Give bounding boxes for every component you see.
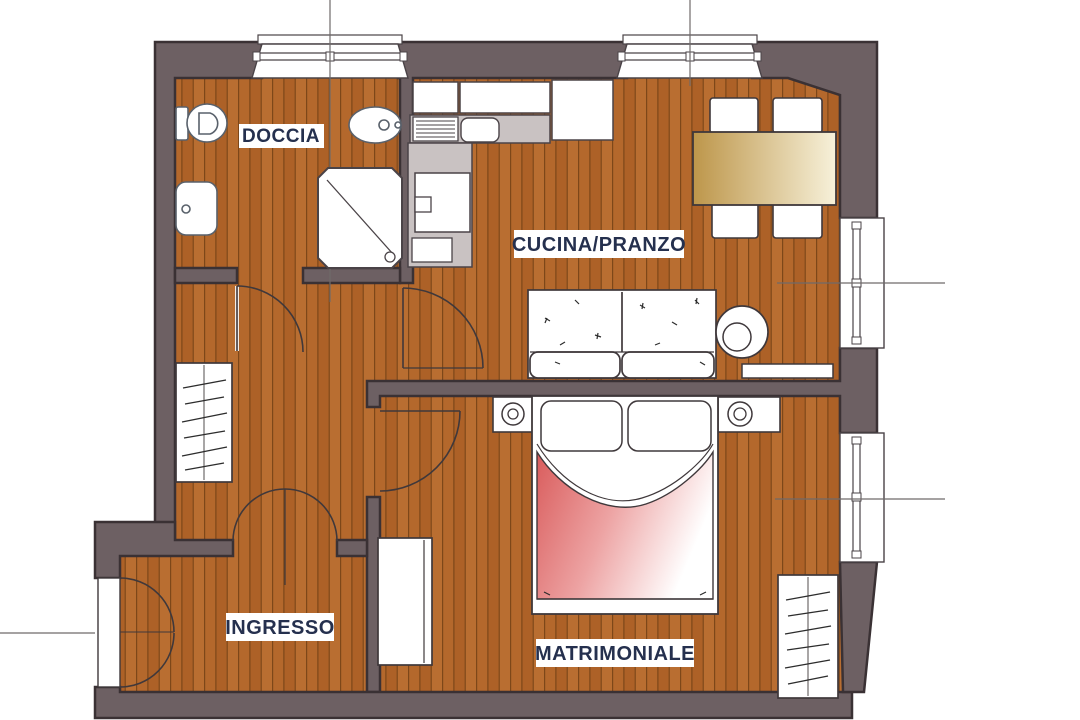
chair [773,98,822,133]
chair [773,203,822,238]
double-bed [532,396,718,614]
sink-basin [461,118,499,142]
oven-handle [415,197,431,212]
cabinet-1 [413,82,458,113]
low-shelf [742,364,833,378]
label-ingresso: INGRESSO [225,613,335,641]
appliance-front [412,238,452,262]
toilet [176,104,227,142]
dining-table [693,132,836,205]
sink-drainer [413,117,458,141]
room-label-text: INGRESSO [225,617,335,639]
floor-plan-canvas: DOCCIA CUCINA/PRANZO INGRESSO MATRIMONIA… [0,0,1080,720]
pillow-right [628,401,711,451]
shower-tray [318,168,402,268]
room-label-text: DOCCIA [242,126,320,147]
wall-hall-ingresso-right [337,540,367,556]
label-cucina-pranzo: CUCINA/PRANZO [512,230,686,258]
wall-right-bottom [840,562,877,692]
label-matrimoniale: MATRIMONIALE [535,639,695,667]
chair [712,203,758,238]
room-label-text: CUCINA/PRANZO [512,234,686,256]
bathroom-sink [176,182,217,235]
label-doccia: DOCCIA [239,124,324,148]
wardrobe-left [378,538,432,665]
bedroom-doorway-floor [367,407,380,497]
pillow-left [541,401,622,451]
chair [710,98,758,133]
window-bedroom-right [840,433,884,562]
wall-bottom [95,687,852,718]
doccia-doorway-floor [237,268,303,283]
closet-hanging-right [778,575,838,698]
room-label-text: MATRIMONIALE [535,643,695,665]
cabinet-corner [552,80,613,140]
sofa [528,290,716,378]
closet-hanging-hall [176,363,232,482]
wall-doccia-bottom-right [303,268,400,283]
floor-plan-svg: DOCCIA CUCINA/PRANZO INGRESSO MATRIMONIA… [0,0,1080,720]
wall-doccia-bottom-left [175,268,237,283]
side-table [716,306,768,358]
cabinet-2 [460,82,550,113]
bidet [349,107,401,143]
